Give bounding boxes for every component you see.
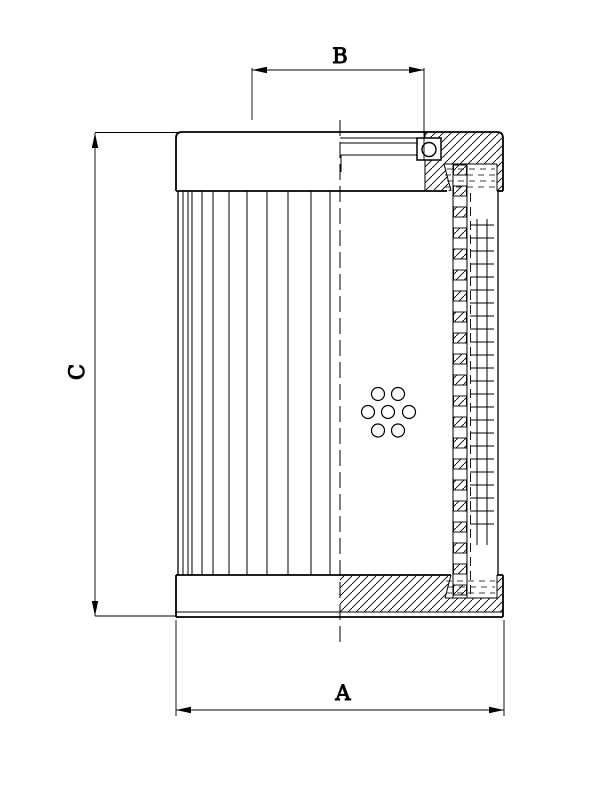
core-tube-perforations	[454, 165, 467, 595]
filter-element-drawing: B C A	[0, 0, 612, 792]
drawing-page: B C A	[0, 0, 612, 792]
paper-background	[0, 0, 612, 792]
dim-label-c: C	[65, 364, 89, 380]
dim-label-a: A	[334, 681, 351, 705]
dim-label-b: B	[332, 44, 347, 68]
o-ring-seal	[417, 138, 441, 160]
